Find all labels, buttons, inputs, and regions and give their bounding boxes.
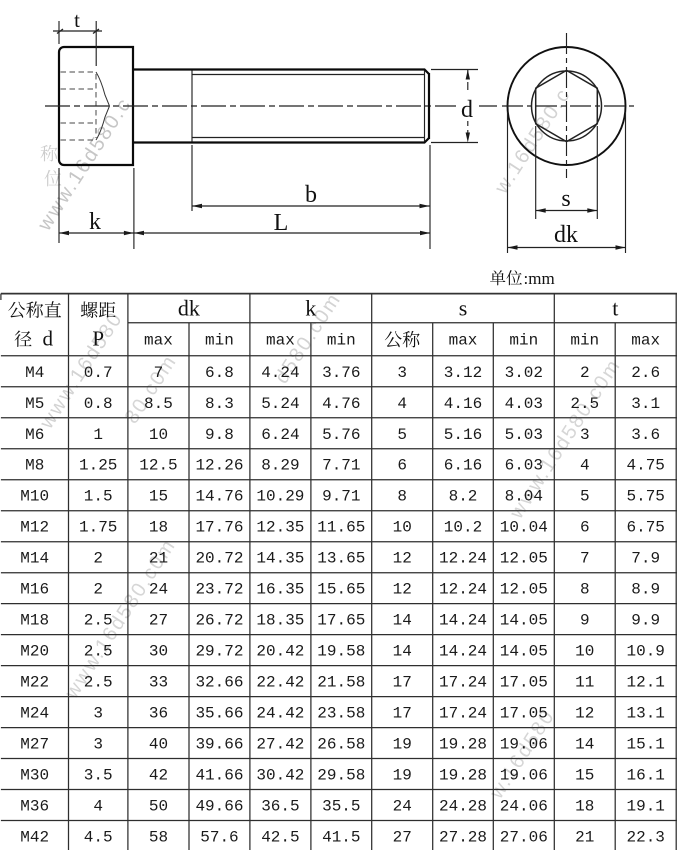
- svg-text:19.06: 19.06: [500, 736, 548, 754]
- svg-text:8.3: 8.3: [205, 395, 234, 413]
- svg-text:12: 12: [393, 581, 412, 599]
- svg-text:3: 3: [93, 736, 103, 754]
- svg-text:6.24: 6.24: [261, 426, 299, 444]
- svg-text:t: t: [74, 8, 80, 32]
- svg-text:39.66: 39.66: [195, 736, 243, 754]
- svg-text:2.5: 2.5: [570, 395, 599, 413]
- svg-text:min: min: [570, 332, 599, 350]
- svg-text:14.05: 14.05: [500, 643, 548, 661]
- svg-text:27.06: 27.06: [500, 829, 548, 847]
- svg-text:M36: M36: [20, 798, 49, 816]
- svg-text:23.58: 23.58: [317, 705, 365, 723]
- svg-text:2.6: 2.6: [631, 364, 660, 382]
- svg-text:24.06: 24.06: [500, 798, 548, 816]
- svg-text:32.66: 32.66: [195, 674, 243, 692]
- svg-text:12.05: 12.05: [500, 550, 548, 568]
- svg-text:24: 24: [393, 798, 412, 816]
- svg-text:3.12: 3.12: [444, 364, 482, 382]
- svg-text:8: 8: [580, 581, 590, 599]
- svg-text:11: 11: [575, 674, 594, 692]
- svg-text:7: 7: [580, 550, 590, 568]
- svg-text:27: 27: [393, 829, 412, 847]
- svg-text:L: L: [274, 210, 289, 236]
- svg-text:19.28: 19.28: [439, 736, 487, 754]
- svg-text:7.9: 7.9: [631, 550, 660, 568]
- svg-text:17.24: 17.24: [439, 674, 487, 692]
- svg-text:30.42: 30.42: [256, 767, 304, 785]
- svg-text:dk: dk: [178, 296, 200, 321]
- svg-text:2: 2: [93, 550, 103, 568]
- svg-text:10: 10: [393, 519, 412, 537]
- svg-text:4.76: 4.76: [322, 395, 360, 413]
- svg-text:15: 15: [149, 488, 168, 506]
- svg-text:5: 5: [580, 488, 590, 506]
- svg-text:10.2: 10.2: [444, 519, 482, 537]
- svg-text:M12: M12: [20, 519, 49, 537]
- svg-text:27.42: 27.42: [256, 736, 304, 754]
- svg-text:M24: M24: [20, 705, 49, 723]
- svg-text:5.76: 5.76: [322, 426, 360, 444]
- svg-text:15.1: 15.1: [626, 736, 664, 754]
- svg-text:3.1: 3.1: [631, 395, 660, 413]
- svg-text:5.03: 5.03: [505, 426, 543, 444]
- svg-text:3.02: 3.02: [505, 364, 543, 382]
- svg-text:M42: M42: [20, 829, 49, 847]
- svg-text:5.16: 5.16: [444, 426, 482, 444]
- svg-text:19.58: 19.58: [317, 643, 365, 661]
- svg-text:36.5: 36.5: [261, 798, 299, 816]
- svg-text:19: 19: [393, 767, 412, 785]
- svg-text:35.66: 35.66: [195, 705, 243, 723]
- svg-text:12: 12: [575, 705, 594, 723]
- svg-text:M8: M8: [25, 457, 44, 475]
- svg-text:10: 10: [149, 426, 168, 444]
- svg-text:M6: M6: [25, 426, 44, 444]
- svg-text:9.71: 9.71: [322, 488, 360, 506]
- svg-text:0.8: 0.8: [84, 395, 113, 413]
- svg-text:s: s: [561, 186, 570, 212]
- svg-text:42.5: 42.5: [261, 829, 299, 847]
- svg-text:8.29: 8.29: [261, 457, 299, 475]
- svg-text:12.35: 12.35: [256, 519, 304, 537]
- svg-text:19: 19: [393, 736, 412, 754]
- svg-text:3.76: 3.76: [322, 364, 360, 382]
- svg-text:min: min: [327, 332, 356, 350]
- svg-text:17: 17: [393, 674, 412, 692]
- svg-text:5.24: 5.24: [261, 395, 299, 413]
- svg-text:57.6: 57.6: [200, 829, 238, 847]
- svg-text:3: 3: [93, 705, 103, 723]
- svg-text:21: 21: [575, 829, 594, 847]
- svg-text:12.24: 12.24: [439, 581, 487, 599]
- svg-text:36: 36: [149, 705, 168, 723]
- svg-text:8.5: 8.5: [144, 395, 173, 413]
- svg-text:27.28: 27.28: [439, 829, 487, 847]
- svg-text:19.28: 19.28: [439, 767, 487, 785]
- svg-text:13.65: 13.65: [317, 550, 365, 568]
- svg-text:1.5: 1.5: [84, 488, 113, 506]
- svg-text:18.35: 18.35: [256, 612, 304, 630]
- svg-text:12.1: 12.1: [626, 674, 664, 692]
- svg-text:5: 5: [397, 426, 407, 444]
- svg-text:6: 6: [397, 457, 407, 475]
- svg-text:8.04: 8.04: [505, 488, 543, 506]
- svg-text:14.76: 14.76: [195, 488, 243, 506]
- svg-text:29.58: 29.58: [317, 767, 365, 785]
- svg-text:10: 10: [575, 643, 594, 661]
- svg-text:9: 9: [580, 612, 590, 630]
- svg-text:t: t: [612, 296, 618, 321]
- svg-text:17.05: 17.05: [500, 674, 548, 692]
- svg-text:4.75: 4.75: [626, 457, 664, 475]
- svg-text:4.24: 4.24: [261, 364, 299, 382]
- svg-text:50: 50: [149, 798, 168, 816]
- svg-text:20.72: 20.72: [195, 550, 243, 568]
- svg-text:d: d: [42, 327, 53, 351]
- svg-text:17.05: 17.05: [500, 705, 548, 723]
- svg-text:7: 7: [154, 364, 164, 382]
- svg-text:20.42: 20.42: [256, 643, 304, 661]
- svg-text:12.5: 12.5: [139, 457, 177, 475]
- svg-text:22.42: 22.42: [256, 674, 304, 692]
- svg-text:4.16: 4.16: [444, 395, 482, 413]
- svg-text:14: 14: [575, 736, 594, 754]
- svg-text:19.06: 19.06: [500, 767, 548, 785]
- svg-text:k: k: [89, 209, 101, 235]
- svg-text:58: 58: [149, 829, 168, 847]
- svg-text:1.25: 1.25: [79, 457, 117, 475]
- svg-text:18: 18: [575, 798, 594, 816]
- svg-text:2: 2: [93, 581, 103, 599]
- svg-text:17: 17: [393, 705, 412, 723]
- svg-text:6.8: 6.8: [205, 364, 234, 382]
- svg-text:14.05: 14.05: [500, 612, 548, 630]
- svg-text:14: 14: [393, 643, 412, 661]
- svg-text:max: max: [631, 332, 660, 350]
- svg-text:0.7: 0.7: [84, 364, 113, 382]
- svg-text:M10: M10: [20, 488, 49, 506]
- svg-text:15: 15: [575, 767, 594, 785]
- svg-text:3: 3: [580, 426, 590, 444]
- svg-text:17.76: 17.76: [195, 519, 243, 537]
- svg-text:M27: M27: [20, 736, 49, 754]
- svg-text:1.75: 1.75: [79, 519, 117, 537]
- svg-text:4: 4: [397, 395, 407, 413]
- svg-text:30: 30: [149, 643, 168, 661]
- svg-text:12.05: 12.05: [500, 581, 548, 599]
- svg-text:4.5: 4.5: [84, 829, 113, 847]
- svg-text:d: d: [461, 97, 473, 123]
- svg-text:k: k: [305, 296, 316, 321]
- svg-text:16.35: 16.35: [256, 581, 304, 599]
- svg-text:14.35: 14.35: [256, 550, 304, 568]
- svg-text:M30: M30: [20, 767, 49, 785]
- svg-text:10.29: 10.29: [256, 488, 304, 506]
- svg-text:max: max: [144, 332, 173, 350]
- svg-text:3.6: 3.6: [631, 426, 660, 444]
- svg-text:4: 4: [580, 457, 590, 475]
- svg-text:29.72: 29.72: [195, 643, 243, 661]
- svg-text:8.9: 8.9: [631, 581, 660, 599]
- svg-text:7.71: 7.71: [322, 457, 360, 475]
- svg-text:49.66: 49.66: [195, 798, 243, 816]
- svg-text:M4: M4: [25, 364, 44, 382]
- svg-text:35.5: 35.5: [322, 798, 360, 816]
- svg-text:14.24: 14.24: [439, 612, 487, 630]
- svg-text:17.65: 17.65: [317, 612, 365, 630]
- svg-text:14: 14: [393, 612, 412, 630]
- svg-text:24: 24: [149, 581, 168, 599]
- svg-text:15.65: 15.65: [317, 581, 365, 599]
- svg-text:M14: M14: [20, 550, 49, 568]
- svg-text:M16: M16: [20, 581, 49, 599]
- svg-text:80.c0m: 80.c0m: [121, 351, 182, 428]
- svg-text:5.75: 5.75: [626, 488, 664, 506]
- svg-text:3.5: 3.5: [84, 767, 113, 785]
- svg-text:26.72: 26.72: [195, 612, 243, 630]
- svg-text:10.04: 10.04: [500, 519, 548, 537]
- svg-text:16.1: 16.1: [626, 767, 664, 785]
- svg-text:M20: M20: [20, 643, 49, 661]
- svg-text:12.26: 12.26: [195, 457, 243, 475]
- svg-text:3: 3: [397, 364, 407, 382]
- svg-text:12.24: 12.24: [439, 550, 487, 568]
- svg-text:19.1: 19.1: [626, 798, 664, 816]
- svg-text:18: 18: [149, 519, 168, 537]
- svg-text:2.5: 2.5: [84, 643, 113, 661]
- svg-text:27: 27: [149, 612, 168, 630]
- svg-text:23.72: 23.72: [195, 581, 243, 599]
- svg-text:8: 8: [397, 488, 407, 506]
- svg-text:21: 21: [149, 550, 168, 568]
- svg-text:33: 33: [149, 674, 168, 692]
- svg-text:4: 4: [93, 798, 103, 816]
- svg-text:6: 6: [580, 519, 590, 537]
- svg-text:P: P: [92, 327, 104, 351]
- svg-text:max: max: [449, 332, 478, 350]
- svg-text:max: max: [266, 332, 295, 350]
- svg-text:10.9: 10.9: [626, 643, 664, 661]
- svg-text:M22: M22: [20, 674, 49, 692]
- svg-text:24.28: 24.28: [439, 798, 487, 816]
- svg-text:21.58: 21.58: [317, 674, 365, 692]
- svg-text:dk: dk: [554, 222, 578, 248]
- svg-text:24.42: 24.42: [256, 705, 304, 723]
- svg-text:42: 42: [149, 767, 168, 785]
- svg-text:M5: M5: [25, 395, 44, 413]
- svg-text:13.1: 13.1: [626, 705, 664, 723]
- svg-text:41.66: 41.66: [195, 767, 243, 785]
- svg-text:M18: M18: [20, 612, 49, 630]
- svg-text:s: s: [459, 296, 468, 321]
- svg-text:41.5: 41.5: [322, 829, 360, 847]
- svg-text:2.5: 2.5: [84, 612, 113, 630]
- svg-text:12: 12: [393, 550, 412, 568]
- svg-text:40: 40: [149, 736, 168, 754]
- svg-text:1: 1: [93, 426, 103, 444]
- svg-text:9.8: 9.8: [205, 426, 234, 444]
- svg-text:4.03: 4.03: [505, 395, 543, 413]
- svg-text:6.75: 6.75: [626, 519, 664, 537]
- svg-text:26.58: 26.58: [317, 736, 365, 754]
- svg-text:6.16: 6.16: [444, 457, 482, 475]
- svg-text:6.03: 6.03: [505, 457, 543, 475]
- svg-text:11.65: 11.65: [317, 519, 365, 537]
- svg-text:b: b: [305, 182, 317, 208]
- svg-text:min: min: [205, 332, 234, 350]
- svg-text:17.24: 17.24: [439, 705, 487, 723]
- svg-text:8.2: 8.2: [449, 488, 478, 506]
- svg-text:22.3: 22.3: [626, 829, 664, 847]
- svg-text:14.24: 14.24: [439, 643, 487, 661]
- svg-text::mm: :mm: [524, 269, 555, 288]
- svg-text:9.9: 9.9: [631, 612, 660, 630]
- svg-text:2: 2: [580, 364, 590, 382]
- svg-text:min: min: [509, 332, 538, 350]
- svg-text:2.5: 2.5: [84, 674, 113, 692]
